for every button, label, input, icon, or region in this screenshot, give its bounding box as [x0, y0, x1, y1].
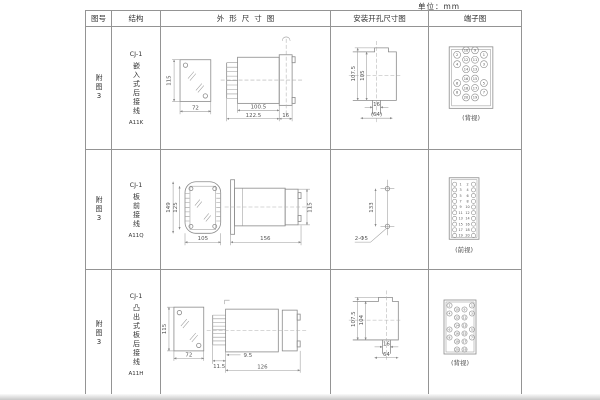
mounting-drawing-row3: 107.5 104 16 64	[331, 270, 429, 398]
outline-svg-row3: 115 72 11.5	[161, 270, 330, 398]
terminal-pin-number: 11	[458, 211, 462, 215]
dim-front-width: 72	[192, 105, 199, 111]
dim-slot-width: 16	[373, 102, 380, 108]
terminal-svg-row3: (背视) 2109141211314136161558181772019	[429, 270, 521, 398]
side-view: 100.5 122.5 16	[221, 37, 302, 121]
terminal-pin	[453, 216, 457, 220]
terminal-pin-number: 16	[465, 222, 469, 226]
terminal-drawing-row3: (背视) 2109141211314136161558181772019	[429, 270, 521, 398]
dim-span: 64	[383, 352, 390, 358]
terminal-pin	[453, 205, 457, 209]
dim-side-length: 156	[260, 236, 271, 242]
terminal-pin-number: 18	[465, 228, 469, 232]
terminal-pin-number: 11	[473, 58, 478, 62]
structure-name-row3: 凸出式板后接线	[133, 304, 140, 367]
terminal-pin	[471, 182, 475, 186]
dim-slot-width: 16	[383, 341, 390, 347]
terminal-pin-number: 6	[466, 194, 468, 198]
terminal-pin-number: 1	[460, 182, 462, 186]
structure-model-row3: A11H	[129, 371, 144, 377]
header-terminal: 端子图	[464, 13, 487, 24]
terminal-pin-number: 12	[455, 316, 459, 320]
terminal-svg-row1: (背视) 2109141211314136161558181772019	[429, 27, 521, 149]
terminal-pin	[471, 188, 475, 192]
terminal-pin	[453, 188, 457, 192]
terminal-pin-number: 5	[483, 81, 485, 85]
structure-name-row2: 板前接线	[133, 193, 140, 229]
terminal-pin-number: 8	[449, 336, 451, 340]
terminal-pin-number: 8	[456, 91, 459, 95]
terminal-pin-number: 13	[473, 67, 478, 71]
terminal-pin-number: 15	[463, 332, 467, 336]
front-view: 149 125 105	[166, 182, 221, 245]
terminal-pin-number: 7	[471, 336, 473, 340]
header-fig: 图号	[91, 13, 106, 24]
outline-svg-row1: 115 72 100.5	[161, 27, 330, 149]
terminal-pin-number: 19	[473, 96, 478, 100]
terminal-drawing-row1: (背视) 2109141211314136161558181772019	[429, 27, 521, 150]
outline-drawing-row2: 149 125 105 156	[161, 150, 331, 270]
terminal-caption-row2: (前视)	[455, 245, 473, 254]
outline-drawing-row3: 115 72 11.5	[161, 270, 331, 398]
dim-cutout-inner-height: 104	[359, 314, 365, 325]
terminal-pin-number: 15	[458, 222, 462, 226]
fig-number-row3: 附图3	[95, 320, 102, 348]
dim-front-height: 115	[167, 75, 173, 85]
terminal-pin-number: 18	[455, 340, 459, 344]
terminal-pin-number: 20	[455, 348, 459, 352]
structure-row2: CJ-1 板前接线 A11Q	[112, 150, 161, 270]
terminal-pin	[471, 205, 475, 209]
dim-front-width: 72	[185, 352, 192, 358]
terminal-pin-number: 2	[449, 304, 451, 308]
dim-offset: 9.5	[244, 353, 253, 359]
dim-pin-length: 11.5	[213, 364, 225, 370]
structure-type-row1: CJ-1	[130, 50, 143, 58]
terminal-pin-number: 1	[471, 304, 473, 308]
terminal-pin	[471, 194, 475, 198]
mounting-drawing-row1: 107.5 105 16 (64)	[331, 27, 429, 150]
terminal-pin-number: 19	[463, 348, 467, 352]
terminal-pin-number: 9	[464, 308, 466, 312]
dim-cutout-inner-height: 105	[360, 70, 366, 80]
terminal-pin-number: 6	[449, 328, 451, 332]
dim-hole-spec: 2-Φ5	[355, 236, 368, 242]
terminal-pin-number: 4	[449, 312, 451, 316]
terminal-pin-number: 5	[471, 328, 473, 332]
terminal-pin-number: 17	[458, 228, 462, 232]
dim-body-length: 100.5	[251, 104, 267, 110]
terminal-pin	[471, 222, 475, 226]
structure-type-row2: CJ-1	[130, 181, 143, 189]
outline-svg-row2: 149 125 105 156	[161, 150, 330, 269]
terminal-drawing-row2: (前视) 1234567891011121314151617181920	[429, 150, 521, 270]
terminal-pin-number: 2	[456, 53, 458, 57]
dim-side-height: 115	[307, 202, 313, 212]
mounting-svg-row1: 107.5 105 16 (64)	[331, 27, 428, 149]
mounting-svg-row2: 133 2-Φ5	[331, 150, 428, 269]
terminal-pin	[453, 211, 457, 215]
terminal-pin-number: 9	[460, 205, 462, 209]
dim-front-height: 115	[162, 324, 168, 334]
terminal-pin-number: 10	[464, 49, 469, 53]
terminal-caption-row1: (背视)	[462, 113, 480, 122]
fig-number-row2: 附图3	[95, 196, 102, 224]
terminal-pin-number: 7	[483, 91, 485, 95]
terminal-pin-number: 7	[460, 200, 462, 204]
terminal-pin	[453, 233, 457, 237]
terminal-pin-number: 3	[483, 62, 485, 66]
dim-front-inner-height: 125	[173, 202, 179, 212]
terminal-caption-row3: (背视)	[451, 358, 469, 367]
structure-row3: CJ-1 凸出式板后接线 A11H	[112, 270, 161, 398]
terminal-pin	[471, 233, 475, 237]
terminal-pin	[453, 194, 457, 198]
terminal-pin-number: 4	[466, 188, 468, 192]
terminal-svg-row2: (前视) 1234567891011121314151617181920	[429, 150, 521, 269]
mounting-svg-row3: 107.5 104 16 64	[331, 270, 428, 398]
terminal-pin	[471, 216, 475, 220]
dim-body-length: 126	[257, 364, 268, 370]
dim-front-width: 105	[198, 236, 208, 242]
terminal-pin-number: 8	[466, 200, 468, 204]
structure-name-row1: 嵌入式后接线	[133, 62, 140, 116]
terminal-pin-number: 14	[455, 324, 459, 328]
terminal-pin-number: 10	[455, 308, 459, 312]
terminal-pin-number: 17	[473, 86, 478, 90]
page-bottom-edge	[0, 394, 600, 400]
dim-cutout-outer-height: 107.5	[351, 311, 357, 327]
terminal-pin-number: 20	[465, 234, 469, 238]
terminal-pin-number: 13	[463, 324, 467, 328]
terminal-pin-number: 14	[465, 217, 469, 221]
manual-page: 单位：mm 图号 结构 外形尺寸图 安装开孔尺寸图 端子图 附图3 CJ-1 嵌…	[0, 0, 600, 400]
terminal-pin-number: 2	[466, 182, 468, 186]
figure-table: 图号 结构 外形尺寸图 安装开孔尺寸图 端子图 附图3 CJ-1 嵌入式后接线 …	[85, 10, 522, 399]
header-outline: 外形尺寸图	[212, 13, 280, 24]
structure-model-row1: A11K	[129, 120, 143, 126]
terminal-pin-number: 15	[473, 77, 478, 81]
dim-cutout-outer-height: 107.5	[351, 66, 357, 82]
side-view: 11.5 9.5 126	[207, 300, 308, 373]
terminal-pin-number: 3	[460, 188, 462, 192]
terminal-pin-number: 14	[464, 67, 469, 71]
header-struct: 结构	[129, 13, 144, 24]
terminal-pin-number: 19	[458, 234, 462, 238]
structure-row1: CJ-1 嵌入式后接线 A11K	[112, 27, 161, 150]
dim-flange-width: 16	[282, 113, 289, 119]
fig-number-row1: 附图3	[95, 74, 102, 102]
terminal-pin-number: 17	[463, 340, 467, 344]
terminal-pin-number: 11	[463, 316, 467, 320]
mounting-drawing-row2: 133 2-Φ5	[331, 150, 429, 270]
terminal-pin-number: 5	[460, 194, 462, 198]
terminal-pin	[453, 182, 457, 186]
terminal-pin-number: 4	[456, 62, 459, 66]
dim-span: (64)	[371, 112, 382, 118]
terminal-pin-number: 12	[465, 211, 469, 215]
structure-type-row3: CJ-1	[130, 292, 143, 300]
terminal-pin-number: 3	[471, 312, 473, 316]
front-view: 115 72	[162, 307, 204, 361]
terminal-pin-number: 13	[458, 217, 462, 221]
terminal-pin-number: 16	[455, 332, 459, 336]
front-view: 115 72	[167, 60, 211, 115]
dim-front-outer-height: 149	[166, 202, 172, 213]
terminal-pin-number: 12	[464, 58, 469, 62]
dim-hole-distance: 133	[369, 202, 375, 213]
terminal-pin-number: 6	[456, 81, 459, 85]
terminal-pin-number: 16	[464, 77, 469, 81]
terminal-pin	[453, 199, 457, 203]
terminal-pin	[471, 199, 475, 203]
terminal-pin-number: 20	[464, 96, 469, 100]
dim-total-length: 122.5	[246, 113, 262, 119]
terminal-pin-number: 1	[483, 53, 485, 57]
structure-model-row2: A11Q	[128, 233, 143, 239]
terminal-pin	[471, 228, 475, 232]
terminal-pin-number: 10	[465, 205, 469, 209]
terminal-pin	[471, 211, 475, 215]
terminal-pin	[453, 222, 457, 226]
side-view: 156 115	[225, 180, 314, 245]
outline-drawing-row1: 115 72 100.5	[161, 27, 331, 150]
header-mounting: 安装开孔尺寸图	[353, 13, 406, 24]
terminal-pin-number: 18	[464, 86, 469, 90]
terminal-pin	[453, 228, 457, 232]
